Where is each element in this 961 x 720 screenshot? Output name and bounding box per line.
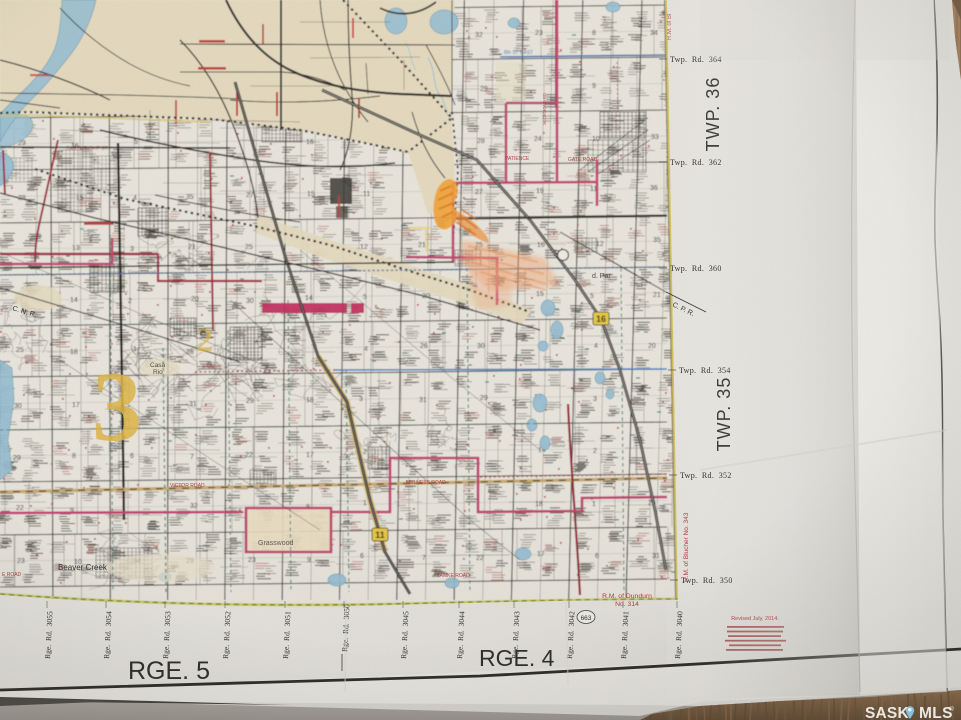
svg-text:SASK: SASK bbox=[865, 705, 909, 720]
svg-text:®: ® bbox=[949, 705, 954, 713]
svg-text:MLS: MLS bbox=[919, 705, 953, 720]
